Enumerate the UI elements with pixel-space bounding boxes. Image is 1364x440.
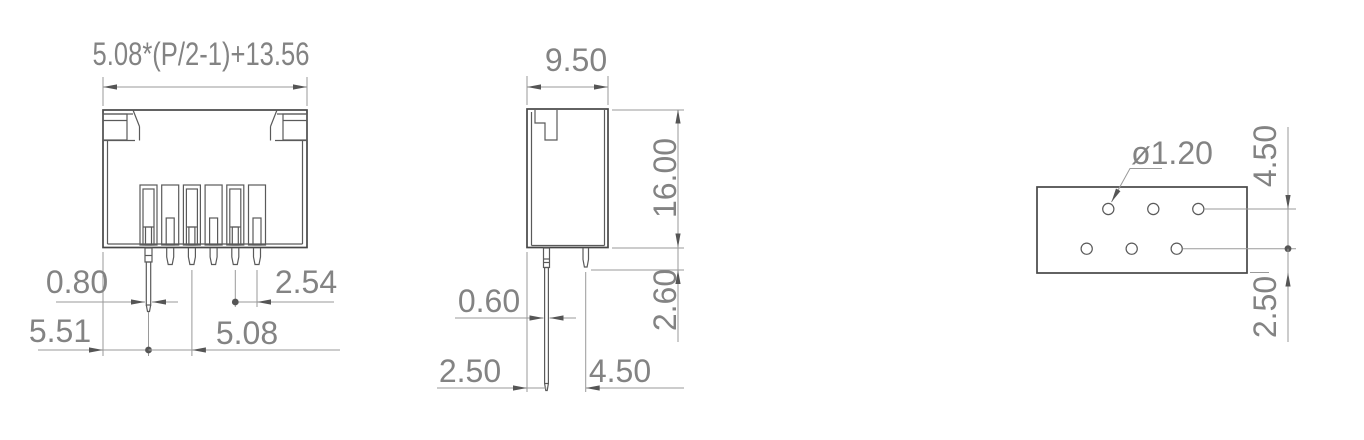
terminal-slot-3 — [183, 185, 200, 245]
terminal-slot-2 — [162, 185, 179, 245]
dim-hole-diameter: ø1.20 — [1131, 135, 1213, 171]
dim-short-pin-tail: 2.60 — [647, 269, 683, 331]
corner-notch — [535, 110, 557, 140]
dim-body-height: 16.00 — [647, 138, 683, 218]
body-outline — [527, 109, 608, 248]
pin-hole — [1103, 203, 1114, 214]
pcb-layout-view: ø1.20 4.50 2.50 — [1037, 125, 1296, 342]
terminal-slot-6 — [249, 185, 266, 245]
pin-2 — [167, 248, 174, 265]
dim-pin-thickness: 0.60 — [458, 283, 520, 319]
dim-edge-to-first-pin: 5.51 — [29, 313, 91, 349]
dim-pitch-long-pins: 5.08 — [216, 315, 278, 351]
pcb-outline — [1037, 187, 1247, 273]
side-view: 9.50 16.00 2.60 0.60 — [437, 42, 684, 392]
latch-left — [103, 110, 140, 141]
latch-right — [271, 110, 308, 141]
technical-drawing-page: 5.08*(P/2-1)+13.56 — [0, 0, 1364, 440]
dim-hole-edge-offset: 2.50 — [1247, 276, 1283, 338]
terminal-slot-5 — [227, 185, 244, 245]
pin-5 — [232, 248, 239, 265]
side-pin-short — [583, 248, 589, 267]
dim-row-spacing: 4.50 — [589, 353, 651, 389]
pin-6 — [254, 248, 261, 265]
connector-drawing: 5.08*(P/2-1)+13.56 — [0, 0, 1364, 440]
dim-front-width-formula: 5.08*(P/2-1)+13.56 — [93, 37, 310, 72]
front-view: 5.08*(P/2-1)+13.56 — [29, 37, 340, 356]
dim-pitch-adjacent: 2.54 — [275, 264, 337, 300]
pin-1-long — [145, 248, 152, 312]
terminal-slot-4 — [205, 185, 222, 245]
terminal-slot-1 — [140, 185, 157, 245]
pin-3 — [188, 248, 195, 265]
dim-front-row-offset: 2.50 — [439, 353, 501, 389]
pin-hole — [1081, 243, 1092, 254]
dim-hole-row-spacing: 4.50 — [1247, 125, 1283, 187]
pin-4 — [210, 248, 217, 265]
dim-body-width: 9.50 — [545, 42, 607, 78]
pin-hole — [1193, 203, 1204, 214]
side-pin-long — [544, 248, 550, 391]
pin-hole — [1148, 203, 1159, 214]
dim-pin-width: 0.80 — [46, 264, 108, 300]
dimension-dot — [232, 299, 239, 306]
pin-hole — [1171, 243, 1182, 254]
leader-line — [1112, 169, 1163, 203]
pin-hole — [1126, 243, 1137, 254]
